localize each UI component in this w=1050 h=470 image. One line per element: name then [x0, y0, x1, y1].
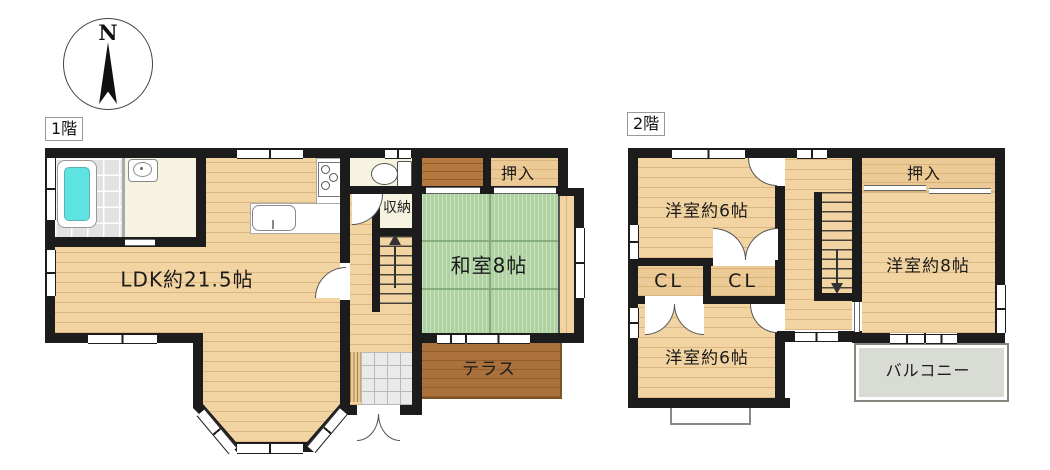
room-label-yoshitsu8: 洋室約8帖: [886, 252, 970, 277]
engawa-strip: [558, 194, 574, 333]
stairs-up: [380, 236, 412, 312]
wall-segment: [814, 192, 822, 301]
window: [629, 308, 639, 338]
wall-segment: [628, 398, 790, 408]
kitchen-sink-tick: [272, 220, 274, 229]
bay-floor: [203, 333, 340, 442]
room-label-balcony: バルコニー: [886, 357, 971, 381]
wall-segment: [703, 296, 785, 304]
sliding-door: [494, 187, 556, 194]
compass-needle-icon: [94, 42, 122, 104]
room-label-yoshitsu6-top: 洋室約6帖: [665, 197, 749, 222]
wall-segment: [340, 186, 422, 194]
wall-segment: [957, 333, 1005, 343]
bath-divider: [122, 158, 125, 240]
wall-segment: [777, 258, 785, 266]
wall-segment: [775, 331, 795, 342]
wall-segment: [628, 148, 638, 408]
window: [890, 334, 924, 344]
sliding-door: [426, 187, 480, 194]
stove-burner: [321, 165, 330, 174]
kitchen-sink-unit: [252, 205, 296, 231]
sliding-door: [864, 185, 926, 191]
bay-window: [670, 408, 751, 425]
wall-segment: [775, 332, 785, 408]
window: [237, 149, 303, 159]
stove-burner: [321, 181, 330, 190]
corridor-floor: [422, 158, 483, 188]
window: [88, 334, 157, 344]
window: [926, 334, 957, 344]
wall-segment: [196, 148, 206, 247]
front-door-arc: [378, 414, 400, 441]
window: [797, 149, 827, 159]
window: [385, 149, 411, 159]
room-label-ldk: LDK約21.5帖: [120, 264, 253, 293]
room-label-yoshitsu6-bottom: 洋室約6帖: [665, 344, 749, 369]
window: [437, 334, 465, 344]
stairs-up-arrow-icon: [394, 246, 396, 288]
window: [795, 332, 838, 342]
shoe-cabinet: [350, 352, 361, 402]
floor-plan-canvas: N 1階 2階: [0, 0, 1050, 470]
wall-segment: [628, 258, 713, 266]
room-label-cl-left: CL: [654, 270, 684, 292]
wall-segment: [340, 148, 350, 263]
sliding-door: [854, 302, 860, 332]
room-label-shuno: 収納: [383, 197, 411, 217]
window: [672, 149, 745, 159]
sink-drain: [140, 167, 143, 170]
window: [575, 228, 585, 298]
wall-segment: [483, 148, 491, 190]
wall-segment: [775, 148, 785, 158]
floor2-tag: 2階: [627, 112, 665, 136]
window: [237, 443, 303, 454]
wall-segment: [400, 405, 422, 415]
room-label-oshiire1: 押入: [501, 160, 535, 184]
wall-segment: [628, 296, 645, 304]
bathtub-water: [64, 167, 90, 221]
wall-segment: [852, 333, 890, 343]
window: [996, 285, 1006, 333]
room-label-oshiire2: 押入: [907, 160, 941, 184]
stairs-down-arrow-icon: [836, 250, 838, 284]
sliding-door: [125, 239, 155, 246]
window: [467, 334, 530, 344]
wall-segment: [340, 300, 350, 412]
room-label-terrace: テラス: [462, 355, 516, 380]
sliding-door: [929, 188, 991, 194]
wall-segment: [814, 293, 852, 301]
stove-burner: [329, 173, 338, 182]
front-door-arc: [357, 414, 379, 441]
floor1-tag: 1階: [45, 117, 83, 141]
compass-icon: N: [63, 18, 153, 110]
room-label-cl-right: CL: [728, 270, 758, 292]
wall-segment: [703, 258, 711, 304]
toilet-icon: [371, 163, 398, 185]
wall-segment: [852, 148, 862, 302]
toilet-tank: [397, 161, 412, 187]
window: [629, 225, 639, 259]
engawa-divider: [558, 194, 560, 333]
wall-segment: [372, 228, 420, 236]
window: [46, 250, 56, 296]
window: [46, 158, 56, 220]
room-label-washitsu: 和室8帖: [451, 250, 528, 279]
compass-north-label: N: [98, 20, 117, 45]
genkan-floor: [361, 352, 412, 405]
